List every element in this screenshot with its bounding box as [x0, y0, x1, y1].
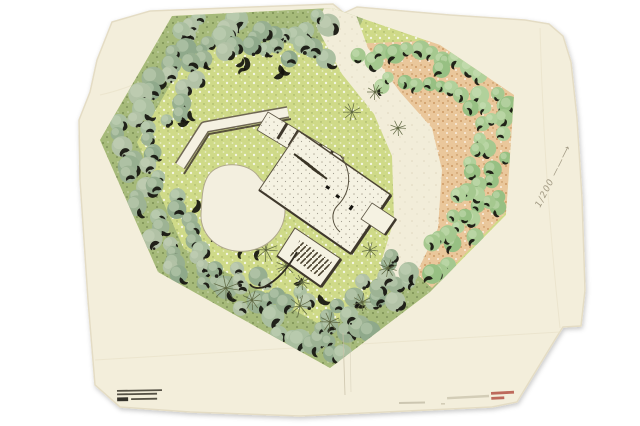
scan-background: 1/200 ——⟶ — [0, 0, 640, 426]
site-plan-drawing: 1/200 ——⟶ — [0, 0, 640, 426]
